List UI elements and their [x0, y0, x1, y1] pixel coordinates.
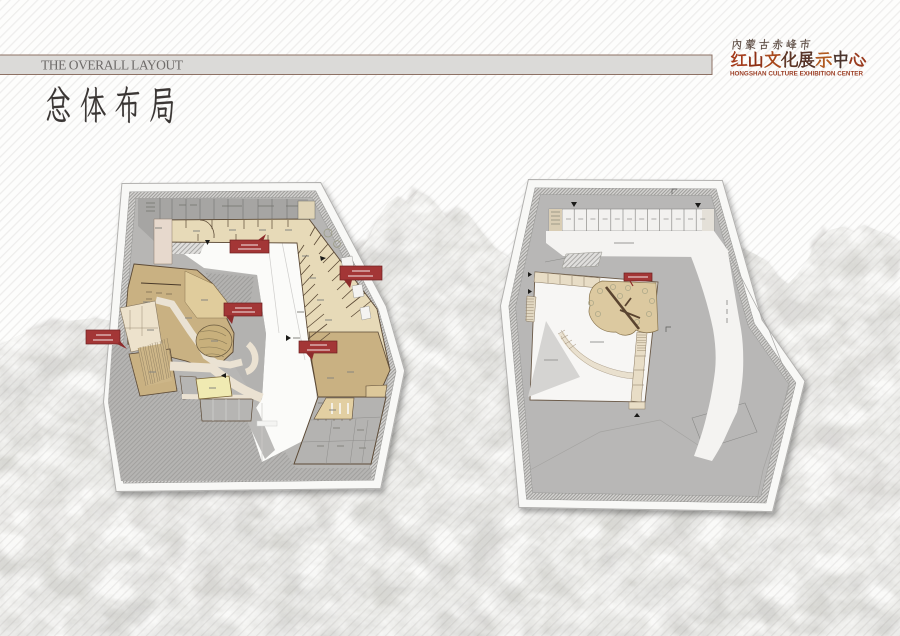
- svg-text:HONGSHAN CULTURE EXHIBITION CE: HONGSHAN CULTURE EXHIBITION CENTER: [730, 72, 864, 78]
- svg-text:THE OVERALL LAYOUT: THE OVERALL LAYOUT: [41, 58, 184, 73]
